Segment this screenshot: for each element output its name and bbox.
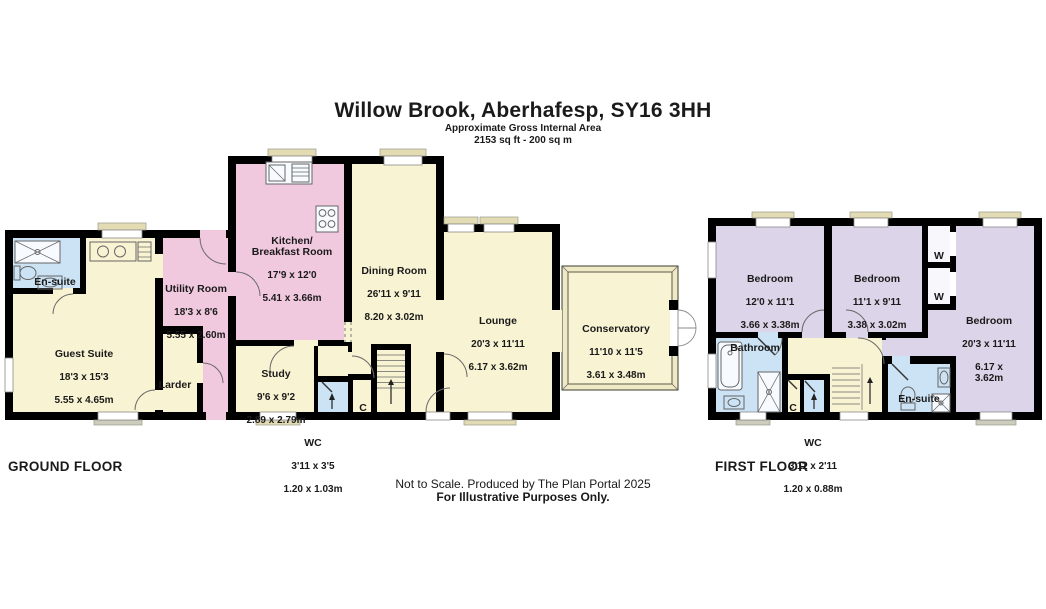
room-metric: 5.41 x 3.66m: [252, 293, 333, 305]
door-gap: [426, 412, 450, 420]
wardrobe1-label: W: [934, 239, 944, 274]
disclaimer-line2: For Illustrative Purposes Only.: [0, 490, 1046, 504]
door-gap: [206, 412, 226, 420]
window: [740, 412, 766, 420]
window-sill: [736, 420, 770, 425]
room-name: W: [934, 292, 944, 304]
window-sill: [464, 420, 516, 425]
window: [708, 242, 716, 278]
dining-label: Dining Room 26'11 x 9'11 8.20 x 3.02m: [361, 254, 426, 335]
room-name: Lounge: [469, 316, 528, 328]
bathroom-label: Bathroom: [730, 331, 780, 366]
room-metric: 6.17 x 3.62m: [469, 362, 528, 374]
first-floor-title: FIRST FLOOR: [715, 459, 808, 474]
ground-floor-title: GROUND FLOOR: [8, 459, 123, 474]
room-imperial: 11'1 x 9'11: [848, 297, 907, 309]
window-sill: [976, 420, 1016, 425]
guest-suite-label: Guest Suite 18'3 x 15'3 5.55 x 4.65m: [55, 337, 114, 418]
subtitle-size: 2153 sq ft - 200 sq m: [0, 135, 1046, 146]
subtitle-area: Approximate Gross Internal Area: [0, 123, 1046, 134]
window: [854, 218, 888, 227]
room-imperial: 18'3 x 8'6: [165, 307, 227, 319]
window-sill: [94, 420, 142, 425]
window-sill: [380, 149, 426, 156]
door-gap: [802, 332, 824, 338]
room-name: Bathroom: [730, 343, 780, 355]
room-name: Bedroom: [741, 274, 800, 286]
room-name: Bedroom: [961, 316, 1018, 328]
room-metric: 5.55 x 2.60m: [165, 330, 227, 342]
room-name: Kitchen/ Breakfast Room: [252, 236, 333, 259]
room-name: En-suite: [898, 394, 939, 406]
larder-label: Larder: [159, 368, 192, 403]
room-metric: 8.20 x 3.02m: [361, 312, 426, 324]
door-gap: [197, 363, 203, 383]
window: [983, 218, 1017, 227]
window: [384, 156, 422, 165]
room-name: Guest Suite: [55, 349, 114, 361]
room-metric: 3.61 x 3.48m: [582, 370, 650, 382]
window: [708, 354, 716, 388]
room-imperial: 20'3 x 11'11: [961, 339, 1018, 351]
window: [448, 224, 474, 232]
lounge-label: Lounge 20'3 x 11'11 6.17 x 3.62m: [469, 304, 528, 385]
room-name: Conservatory: [582, 324, 650, 336]
room-name: WC: [784, 438, 843, 450]
room-name: Utility Room: [165, 284, 227, 296]
kitchen-sink-icon: [266, 162, 312, 184]
bedroom2-label: Bedroom 11'1 x 9'11 3.38 x 3.02m: [848, 262, 907, 343]
conservatory-label: Conservatory 11'10 x 11'5 3.61 x 3.48m: [582, 312, 650, 393]
window-sill: [268, 149, 316, 156]
room-name: Bedroom: [848, 274, 907, 286]
window-sill: [444, 217, 478, 224]
room-imperial: 20'3 x 11'11: [469, 339, 528, 351]
french-doors-icon: [678, 310, 696, 346]
cupboard-label-ground: C: [359, 391, 367, 426]
ensuite-label: En-suite: [34, 265, 75, 300]
ensuite-label-first: En-suite: [898, 382, 939, 417]
wardrobe-door-gap: [950, 272, 956, 296]
opening: [552, 310, 562, 352]
window-sill: [979, 212, 1021, 218]
door-gap: [200, 230, 226, 238]
window: [5, 358, 13, 392]
cupboard-label-first: C: [789, 391, 797, 426]
room-name: W: [934, 251, 944, 263]
room-name: C: [789, 403, 797, 415]
room-imperial: 3'11 x 3'5: [284, 461, 343, 473]
room-name: Study: [247, 369, 306, 381]
wardrobe-door-gap: [950, 232, 956, 256]
room-metric: 5.55 x 4.65m: [55, 395, 114, 407]
wardrobe2-label: W: [934, 280, 944, 315]
bedroom3-label: Bedroom 20'3 x 11'11 6.17 x 3.62m: [961, 304, 1018, 396]
door-gap: [344, 352, 352, 374]
door-gap: [892, 356, 910, 364]
room-name: Dining Room: [361, 266, 426, 278]
room-imperial: 26'11 x 9'11: [361, 289, 426, 301]
shower-icon: [15, 241, 60, 263]
room-metric: 3.38 x 3.02m: [848, 320, 907, 332]
landing-part: [830, 378, 882, 412]
utility-label: Utility Room 18'3 x 8'6 5.55 x 2.60m: [165, 272, 227, 353]
room-metric: 3.66 x 3.38m: [741, 320, 800, 332]
landing: [788, 338, 882, 378]
room-imperial: 11'10 x 11'5: [582, 347, 650, 359]
opening: [436, 300, 444, 352]
window-sill: [850, 212, 892, 218]
room-imperial: 17'9 x 12'0: [252, 270, 333, 282]
window: [484, 224, 514, 232]
window-sill: [752, 212, 794, 218]
room-imperial: 12'0 x 11'1: [741, 297, 800, 309]
room-imperial: 18'3 x 15'3: [55, 372, 114, 384]
room-name: En-suite: [34, 277, 75, 289]
window: [980, 412, 1012, 420]
room-imperial: 9'6 x 9'2: [247, 392, 306, 404]
floorplan-page: Willow Brook, Aberhafesp, SY16 3HH Appro…: [0, 0, 1046, 609]
disclaimer-line1: Not to Scale. Produced by The Plan Porta…: [0, 477, 1046, 491]
door-gap: [294, 340, 318, 346]
kitchen-label: Kitchen/ Breakfast Room 17'9 x 12'0 5.41…: [252, 224, 333, 316]
room-name: C: [359, 403, 367, 415]
room-metric: 2.89 x 2.79m: [247, 415, 306, 427]
room-name: WC: [284, 438, 343, 450]
window-sill: [98, 223, 146, 230]
window-sill: [480, 217, 518, 224]
room-name: Larder: [159, 380, 192, 392]
room-metric: 6.17 x 3.62m: [961, 362, 1018, 385]
window: [756, 218, 790, 227]
entrance-hall: [318, 346, 348, 376]
window: [840, 412, 868, 420]
door-gap: [228, 272, 236, 296]
window: [468, 412, 512, 420]
door-gap: [155, 254, 163, 278]
page-title: Willow Brook, Aberhafesp, SY16 3HH: [0, 99, 1046, 123]
window: [102, 230, 142, 238]
shower-icon: [758, 372, 780, 412]
